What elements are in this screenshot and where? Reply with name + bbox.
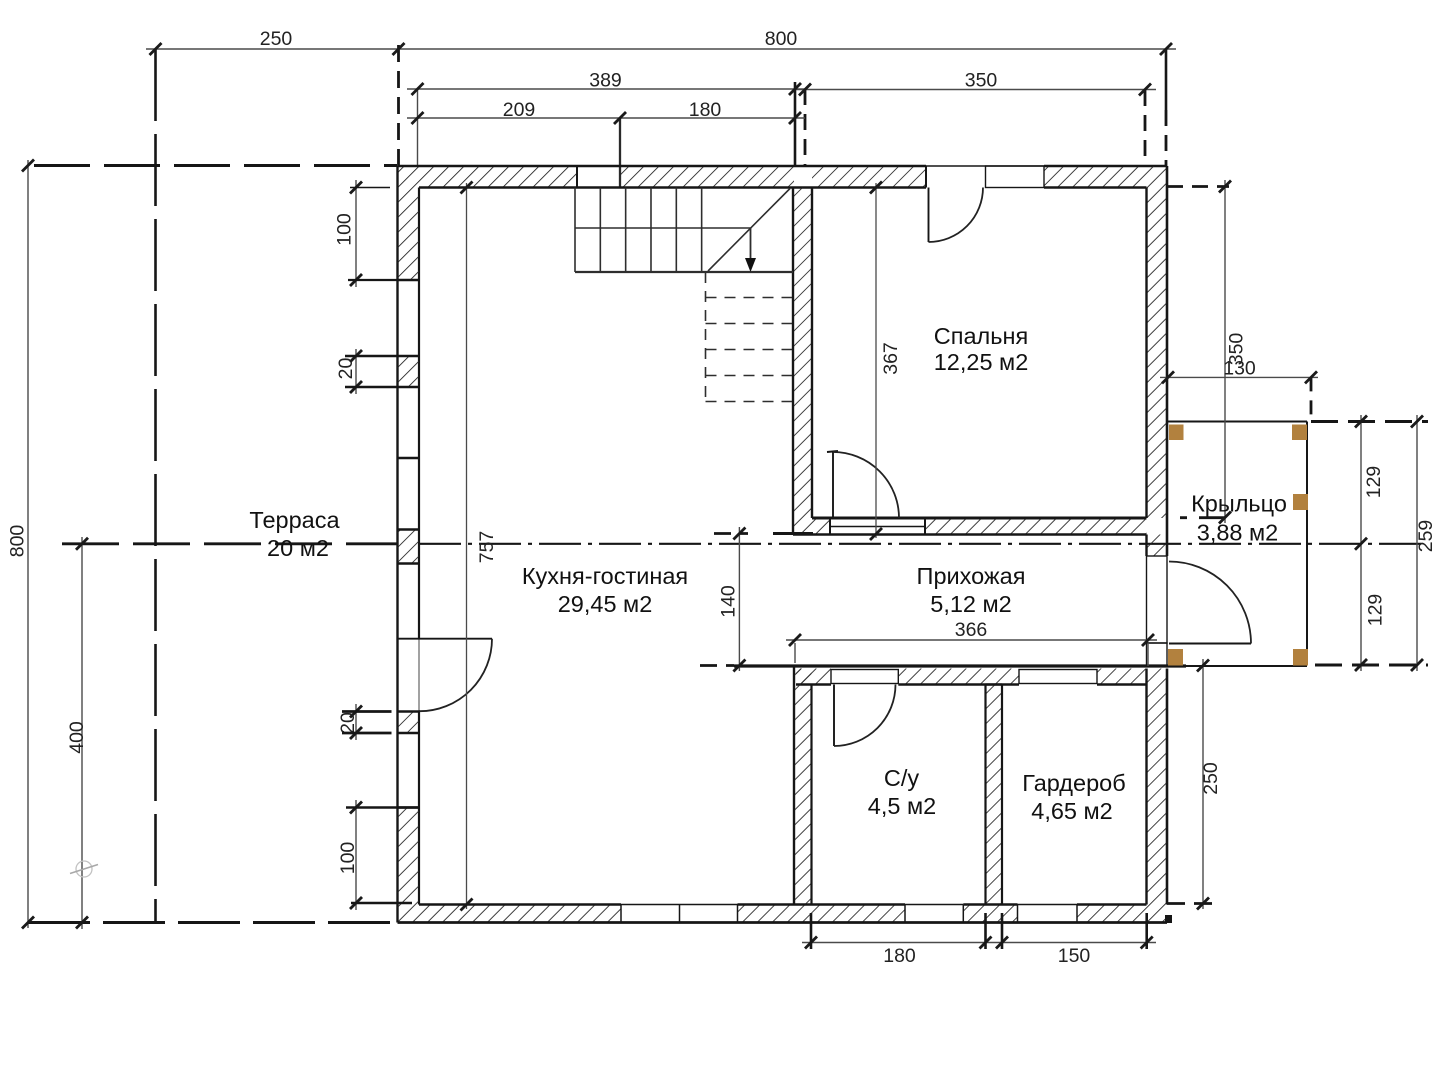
svg-text:20: 20 (335, 358, 357, 380)
svg-text:800: 800 (7, 525, 29, 558)
svg-text:29,45 м2: 29,45 м2 (558, 591, 653, 617)
svg-text:180: 180 (883, 945, 916, 967)
svg-text:5,12 м2: 5,12 м2 (930, 591, 1012, 617)
svg-text:20 м2: 20 м2 (267, 535, 329, 561)
svg-text:129: 129 (1363, 466, 1385, 499)
svg-text:Крыльцо: Крыльцо (1191, 491, 1287, 517)
svg-text:250: 250 (260, 28, 293, 50)
svg-text:12,25 м2: 12,25 м2 (934, 349, 1029, 375)
svg-text:130: 130 (1223, 358, 1256, 380)
svg-text:389: 389 (589, 70, 622, 92)
svg-text:150: 150 (1058, 945, 1091, 967)
svg-text:250: 250 (1200, 762, 1222, 795)
svg-text:367: 367 (880, 342, 902, 375)
svg-text:С/у: С/у (884, 765, 920, 791)
svg-text:20: 20 (337, 712, 359, 734)
svg-text:Спальня: Спальня (934, 323, 1028, 349)
svg-text:140: 140 (718, 585, 740, 618)
svg-text:3,88 м2: 3,88 м2 (1197, 520, 1279, 546)
svg-text:100: 100 (334, 213, 356, 246)
svg-text:180: 180 (689, 99, 722, 121)
svg-text:757: 757 (476, 531, 498, 564)
svg-text:259: 259 (1415, 520, 1437, 553)
svg-text:Гардероб: Гардероб (1022, 770, 1125, 796)
svg-text:800: 800 (765, 28, 798, 50)
svg-text:209: 209 (503, 99, 536, 121)
svg-text:4,5 м2: 4,5 м2 (868, 793, 936, 819)
svg-text:Прихожая: Прихожая (917, 563, 1026, 589)
svg-text:350: 350 (965, 70, 998, 92)
svg-text:Терраса: Терраса (249, 507, 340, 533)
svg-text:100: 100 (337, 842, 359, 875)
svg-text:Кухня-гостиная: Кухня-гостиная (522, 563, 688, 589)
svg-text:366: 366 (955, 619, 988, 641)
svg-text:4,65 м2: 4,65 м2 (1031, 798, 1113, 824)
svg-text:400: 400 (66, 721, 88, 754)
svg-text:129: 129 (1365, 594, 1387, 627)
